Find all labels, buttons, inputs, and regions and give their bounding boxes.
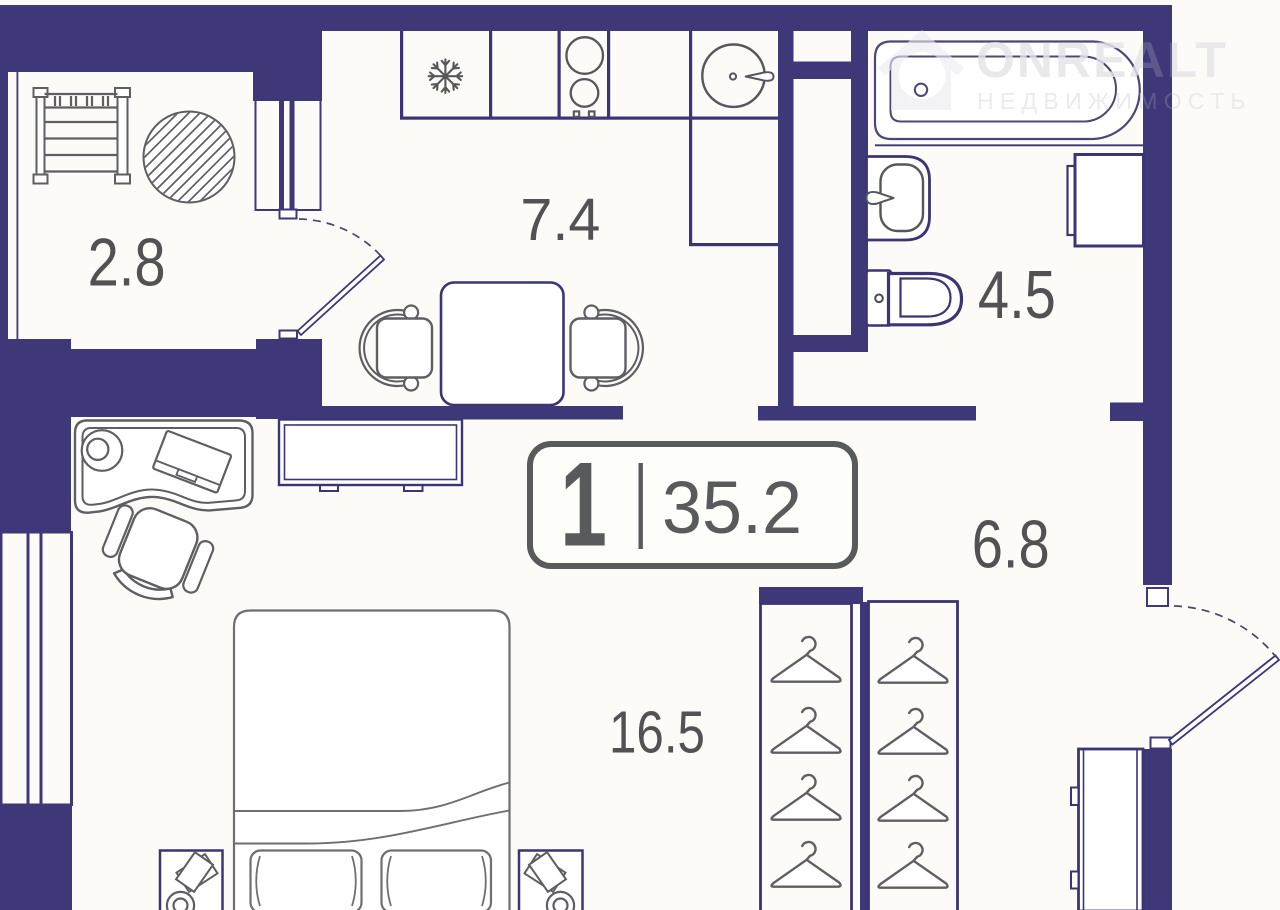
svg-text:1: 1: [560, 438, 607, 572]
svg-text:4.5: 4.5: [978, 257, 1056, 333]
svg-text:35.2: 35.2: [662, 466, 802, 549]
svg-text:2.8: 2.8: [88, 224, 166, 300]
svg-text:6.8: 6.8: [972, 507, 1050, 583]
svg-text:16.5: 16.5: [609, 699, 705, 765]
svg-text:НЕДВИЖИМОСТЬ: НЕДВИЖИМОСТЬ: [977, 88, 1252, 114]
svg-text:ONREALT: ONREALT: [976, 32, 1228, 88]
svg-text:7.4: 7.4: [520, 187, 600, 253]
